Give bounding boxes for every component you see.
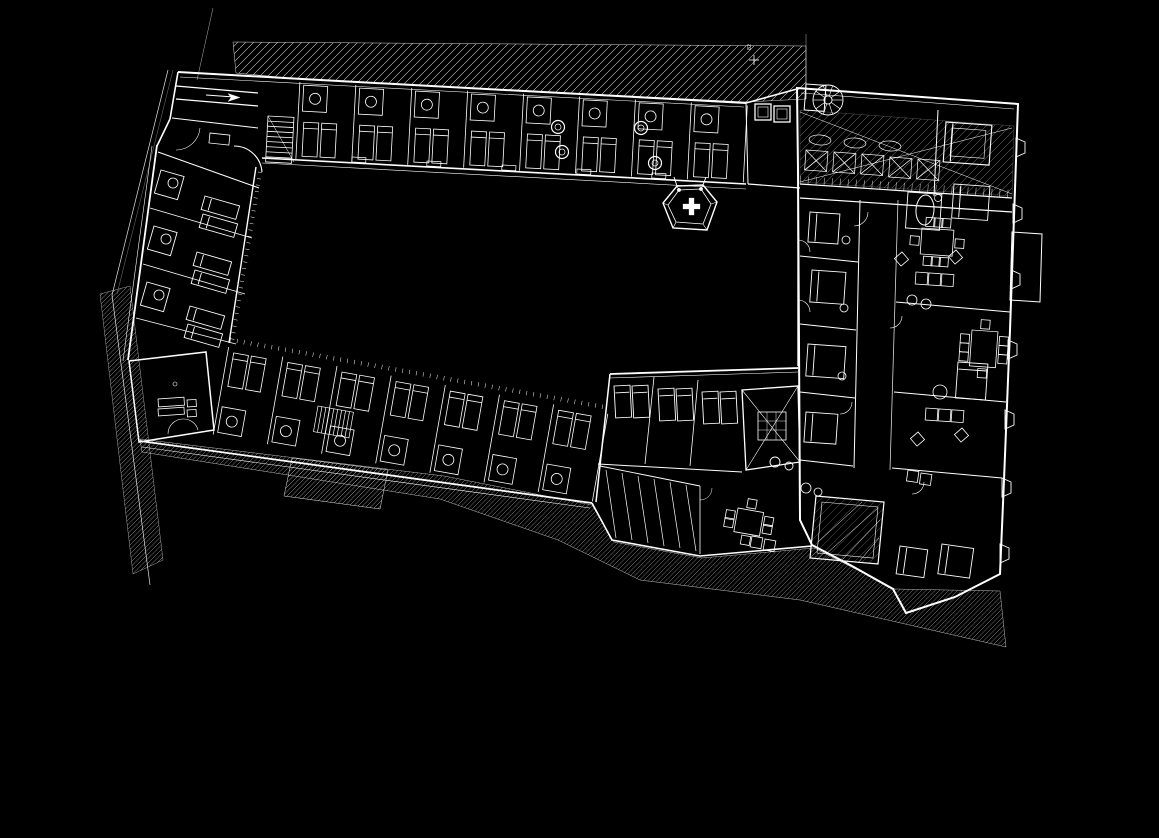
west-bath-pod bbox=[147, 226, 177, 256]
round-table bbox=[933, 385, 947, 399]
bed bbox=[201, 196, 239, 219]
hex-rib bbox=[673, 222, 676, 228]
layer-courtyard bbox=[229, 146, 810, 366]
courtyard-west-ticks bbox=[231, 172, 262, 339]
courtyard-north-wall-inner bbox=[262, 163, 746, 189]
bed bbox=[808, 212, 840, 244]
entry-arrow-head bbox=[228, 94, 240, 102]
west-bath-fixture bbox=[154, 290, 164, 300]
corner-desk bbox=[158, 397, 184, 407]
bed bbox=[702, 391, 720, 424]
corner-door-arc bbox=[168, 419, 183, 434]
hall-shaft-inner bbox=[777, 109, 787, 119]
skylight-hatch bbox=[810, 496, 884, 564]
stair-core-diagonal bbox=[746, 386, 798, 470]
survey-marker-label: 82 bbox=[747, 44, 753, 50]
door-arc bbox=[890, 316, 902, 328]
shower-symbol bbox=[638, 125, 644, 131]
bed bbox=[810, 270, 846, 304]
hex-cross-icon bbox=[683, 204, 700, 209]
sofa bbox=[915, 272, 954, 287]
stack-wall bbox=[800, 324, 856, 330]
adjacent-roof-hatch bbox=[233, 42, 806, 102]
cell-partition bbox=[654, 479, 664, 546]
cell-partition bbox=[638, 476, 648, 543]
shower-symbol bbox=[649, 157, 662, 170]
hex-dot bbox=[677, 188, 681, 192]
west-bath-pod bbox=[140, 282, 170, 312]
northwest-stair-diagonal bbox=[268, 116, 294, 162]
shower-symbol bbox=[555, 124, 561, 130]
radiator bbox=[352, 157, 366, 163]
stack-wall bbox=[800, 392, 855, 398]
sofa bbox=[925, 408, 964, 423]
bathtub bbox=[915, 194, 935, 225]
hex-connector bbox=[674, 177, 677, 186]
corridor-wall bbox=[890, 200, 898, 470]
shower-symbol bbox=[556, 146, 569, 159]
entry-corridor-wall bbox=[176, 99, 258, 106]
bed bbox=[938, 544, 974, 578]
west-outer-wall-offset bbox=[123, 146, 152, 361]
corner-desk bbox=[187, 409, 196, 417]
stack-wall bbox=[800, 256, 858, 262]
middle-corridor-wall bbox=[598, 464, 742, 472]
corner-dot bbox=[173, 382, 177, 386]
stack-wall bbox=[800, 460, 853, 466]
cell-partition bbox=[622, 473, 632, 540]
bed bbox=[720, 391, 738, 424]
bed bbox=[193, 252, 231, 275]
cell-partition bbox=[670, 482, 680, 548]
shower-symbol bbox=[552, 121, 565, 134]
vestibule-wall bbox=[172, 118, 258, 128]
middle-partition bbox=[690, 380, 698, 466]
layer-middle-block bbox=[592, 368, 812, 556]
courtyard-west-wall bbox=[229, 167, 256, 343]
sink-fixture bbox=[935, 195, 942, 202]
wc-fixture bbox=[840, 304, 848, 312]
plan-geometry bbox=[100, 8, 1042, 647]
apartment-wall bbox=[800, 198, 1012, 212]
courtyard-north-wall bbox=[262, 158, 746, 184]
armchair bbox=[910, 432, 924, 446]
cell-partition bbox=[686, 485, 696, 551]
pavement-patch-hatch bbox=[284, 458, 388, 509]
hall-bottom-wall bbox=[748, 184, 800, 188]
apartment-wall bbox=[896, 302, 1010, 312]
door-arc bbox=[912, 482, 924, 494]
vestibule-door-arc bbox=[176, 128, 200, 150]
stair-core bbox=[742, 386, 800, 470]
courtyard-corner-arc bbox=[234, 146, 262, 172]
west-bath-fixture bbox=[168, 178, 178, 188]
hall-shaft-inner bbox=[758, 107, 768, 117]
radiator bbox=[652, 173, 666, 179]
cell-partition bbox=[606, 470, 616, 538]
sofa-seat bbox=[906, 470, 918, 482]
corner-door-arc bbox=[183, 419, 198, 430]
middle-partition bbox=[645, 377, 654, 464]
apartment-wall bbox=[894, 392, 1006, 402]
bed bbox=[191, 270, 229, 293]
bed bbox=[658, 388, 676, 421]
hall-shaft bbox=[774, 106, 790, 122]
bed bbox=[804, 412, 838, 444]
radiator bbox=[577, 169, 591, 175]
radiator bbox=[502, 165, 516, 171]
wc-fixture bbox=[801, 483, 811, 493]
bed bbox=[186, 306, 224, 329]
stair-core-grid bbox=[758, 412, 786, 440]
bed bbox=[199, 214, 237, 237]
door-arc bbox=[854, 212, 868, 226]
floor-plan-svg: 82 bbox=[0, 0, 1159, 838]
north-end-wall bbox=[157, 119, 170, 146]
armchair bbox=[948, 250, 962, 264]
sofa-seat bbox=[750, 536, 763, 549]
dining-table bbox=[908, 216, 965, 268]
west-bath-pod bbox=[154, 170, 184, 200]
south-stair bbox=[313, 406, 353, 438]
door-arc bbox=[700, 488, 712, 500]
north-end-wall bbox=[170, 72, 178, 119]
wc-fixture bbox=[842, 236, 850, 244]
bed bbox=[896, 546, 928, 578]
bed bbox=[632, 385, 650, 418]
west-partition bbox=[158, 152, 259, 188]
door-arc bbox=[840, 402, 852, 414]
bed bbox=[806, 344, 846, 379]
dining-table bbox=[958, 318, 1010, 379]
west-bath-fixture bbox=[161, 234, 171, 244]
armchair bbox=[954, 428, 968, 442]
north-site-line bbox=[197, 8, 213, 80]
layer-right-block bbox=[797, 84, 1042, 613]
balcony bbox=[1010, 232, 1042, 302]
entry-corridor-wall bbox=[176, 86, 258, 93]
wc-fixture bbox=[814, 488, 822, 496]
corner-desk bbox=[187, 399, 196, 407]
shower-symbol bbox=[635, 122, 648, 135]
stair-core-diagonal bbox=[742, 390, 800, 462]
west-partition bbox=[150, 208, 252, 238]
dining-table bbox=[721, 495, 776, 549]
property-line-offset bbox=[117, 70, 173, 294]
apartment-wall bbox=[892, 468, 1002, 478]
hall-shaft bbox=[755, 104, 771, 120]
hex-dot bbox=[699, 187, 703, 191]
west-outer-wall bbox=[128, 145, 157, 360]
floor-plan-canvas: 82 bbox=[0, 0, 1159, 838]
bed bbox=[955, 362, 987, 400]
stack-wall bbox=[854, 200, 860, 468]
corner-desk bbox=[158, 407, 184, 416]
bed bbox=[676, 388, 694, 421]
sofa-seat bbox=[919, 473, 931, 485]
vestibule-cabinet bbox=[209, 133, 230, 145]
northwest-stair bbox=[266, 116, 294, 163]
bed bbox=[614, 385, 632, 418]
